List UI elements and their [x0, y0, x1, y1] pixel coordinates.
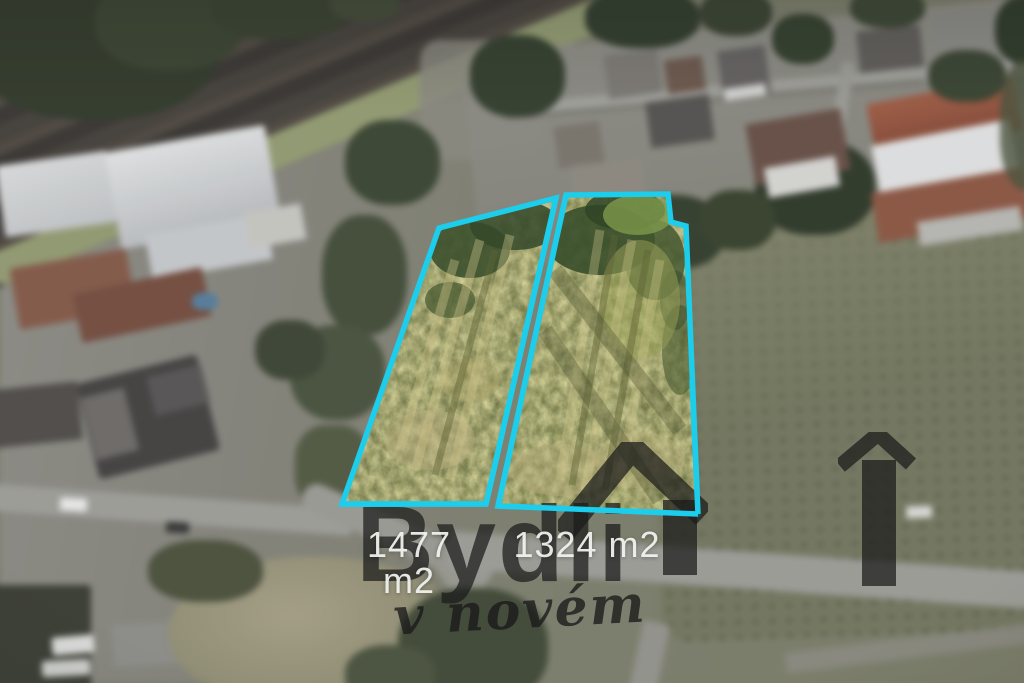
parcel-outline-touchup	[0, 0, 1024, 683]
parcel-area-label-left: 1477 m2	[336, 527, 482, 599]
parcel-area-label-right: 1324 m2	[512, 527, 662, 563]
aerial-photo: Bydli v novém 1477 m2 1324 m2	[0, 0, 1024, 683]
